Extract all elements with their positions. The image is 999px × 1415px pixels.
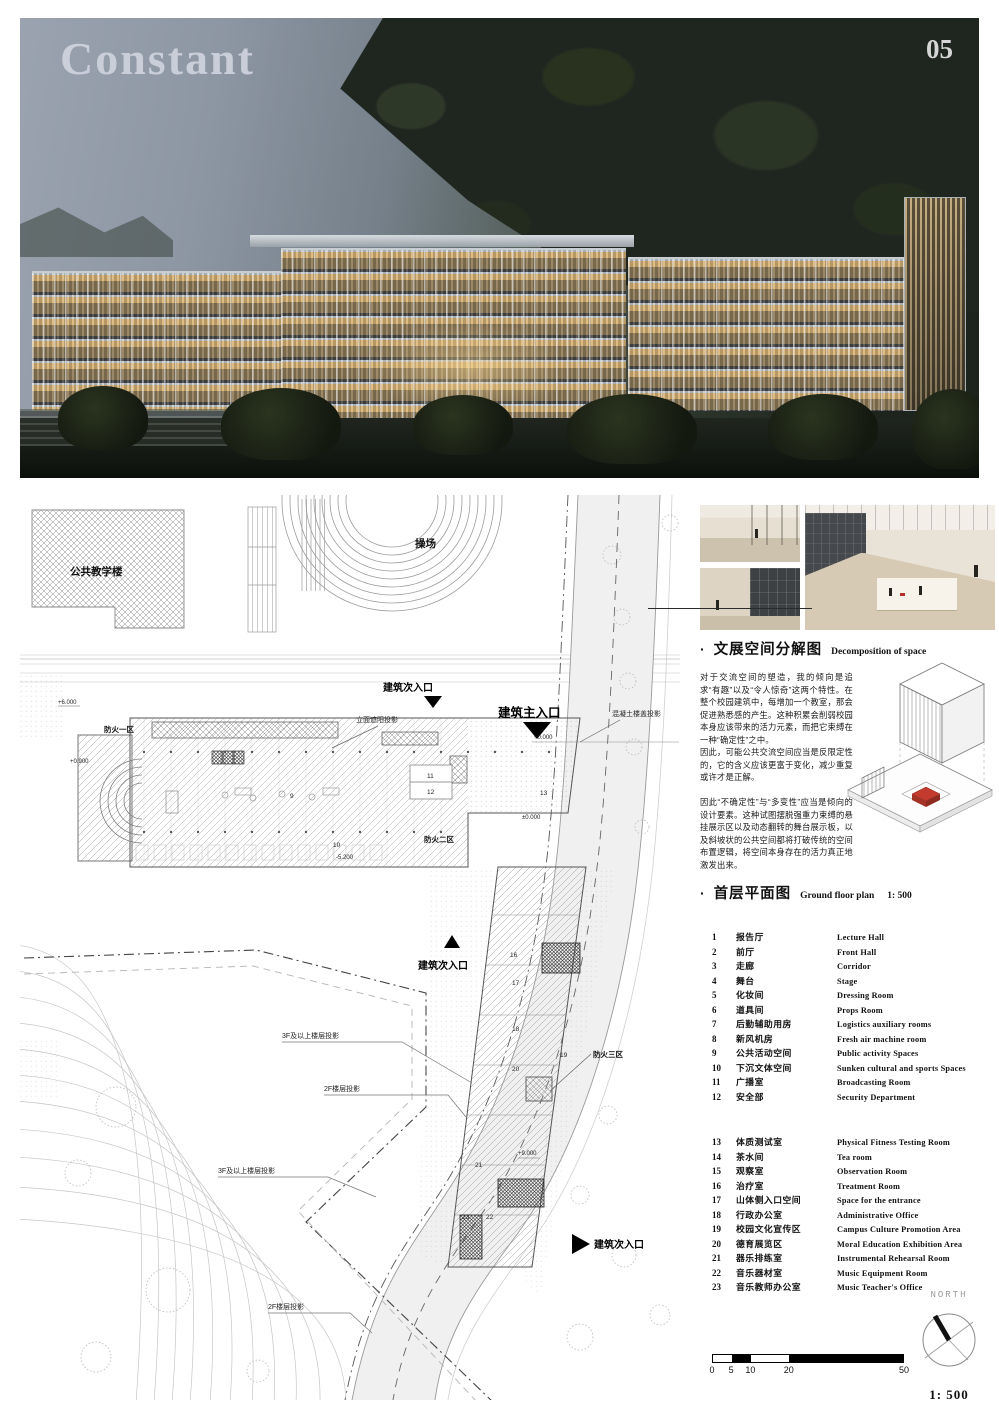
striped-strip-building xyxy=(248,507,276,632)
foreground-tree xyxy=(567,394,697,464)
section-decomposition-heading: · 文展空间分解图 Decomposition of space xyxy=(700,638,926,659)
legend-row: 21器乐排练室Instrumental Rehearsal Room xyxy=(712,1251,995,1266)
legend-row: 18行政办公室Administrative Office xyxy=(712,1208,995,1223)
figure-silhouette xyxy=(755,529,758,538)
svg-text:防火二区: 防火二区 xyxy=(424,834,454,844)
svg-text:3F及以上楼层投影: 3F及以上楼层投影 xyxy=(282,1031,339,1040)
north-label: NORTH xyxy=(912,1290,986,1300)
svg-text:13: 13 xyxy=(540,790,548,797)
legend-row: 14茶水间Tea room xyxy=(712,1150,995,1165)
foreground-tree xyxy=(768,394,878,460)
compass-rose xyxy=(912,1300,986,1378)
svg-text:18: 18 xyxy=(512,1026,520,1033)
svg-text:21: 21 xyxy=(475,1162,483,1169)
legend-row: 20德育展览区Moral Education Exhibition Area xyxy=(712,1237,995,1252)
section-title-en: Decomposition of space xyxy=(831,647,926,657)
legend-row: 19校园文化宣传区Campus Culture Promotion Area xyxy=(712,1222,995,1237)
bullet: · xyxy=(700,641,705,657)
foreground-tree xyxy=(58,386,148,450)
figure-silhouette xyxy=(974,565,978,577)
public-building-label: 公共教学楼 xyxy=(70,565,123,578)
stage-object-red xyxy=(900,593,905,596)
legend-row: 9公共活动空间Public activity Spaces xyxy=(712,1046,995,1061)
ground-floor-plan: 公共教学楼 操场 xyxy=(20,495,680,1400)
north-compass: NORTH 1: 500 xyxy=(912,1290,986,1403)
svg-text:17: 17 xyxy=(512,980,520,987)
entrance-secondary-top-label: 建筑次入口 xyxy=(382,681,433,694)
legend-row: 8新风机房Fresh air machine room xyxy=(712,1032,995,1047)
legend-row: 5化妆间Dressing Room xyxy=(712,988,995,1003)
playground-label: 操场 xyxy=(415,537,436,550)
building-roof-slab xyxy=(250,235,634,247)
legend-row: 22音乐器材室Music Equipment Room xyxy=(712,1266,995,1281)
bullet: · xyxy=(700,885,705,901)
svg-text:19: 19 xyxy=(560,1052,568,1059)
sheet-title: Constant xyxy=(60,32,255,85)
legend-row: 17山体侧入口空间Space for the entrance xyxy=(712,1193,995,1208)
foreground-tree xyxy=(912,389,979,469)
entrance-secondary-bottom-label: 建筑次入口 xyxy=(593,1238,644,1251)
fire-core-1 xyxy=(152,722,338,738)
hero-render: Constant 05 xyxy=(20,18,979,478)
decomposition-axon-diagram xyxy=(838,658,998,878)
concept-paragraph-3: 因此“不确定性”与“多变性”应当是倾向的设计要素。这种试图摆脱强重力束缚的悬挂展… xyxy=(700,796,853,871)
plan-scale-ratio: 1: 500 xyxy=(912,1387,986,1403)
page-number: 05 xyxy=(926,34,953,65)
stage-object xyxy=(919,586,922,595)
foreground-tree xyxy=(413,395,513,455)
svg-text:+0.000: +0.000 xyxy=(534,735,553,741)
svg-text:9: 9 xyxy=(290,793,294,800)
interior-render-large xyxy=(805,505,995,630)
legend-group-b: 13体质测试室Physical Fitness Testing Room 14茶… xyxy=(712,1135,995,1295)
svg-text:3F及以上楼层投影: 3F及以上楼层投影 xyxy=(218,1166,275,1175)
svg-text:2F楼层投影: 2F楼层投影 xyxy=(324,1084,360,1093)
north-needle xyxy=(935,1316,949,1340)
legend-row: 15观察室Observation Room xyxy=(712,1164,995,1179)
section-title-zh: 文展空间分解图 xyxy=(714,638,823,659)
running-track xyxy=(282,495,502,611)
main-building-strip xyxy=(78,718,580,867)
svg-text:2F楼层投影: 2F楼层投影 xyxy=(268,1302,304,1311)
legend-row: 3走廊Corridor xyxy=(712,959,995,974)
svg-text:混凝土楼盖投影: 混凝土楼盖投影 xyxy=(612,709,661,718)
legend-row: 13体质测试室Physical Fitness Testing Room xyxy=(712,1135,995,1150)
legend-row: 2前厅Front Hall xyxy=(712,945,995,960)
svg-text:+0.900: +0.900 xyxy=(70,759,89,765)
svg-text:23: 23 xyxy=(462,1214,470,1221)
legend-row: 6道具间Props Room xyxy=(712,1003,995,1018)
section-ground-floor-heading: · 首层平面图 Ground floor plan 1: 500 xyxy=(700,882,912,903)
legend-row: 11广播室Broadcasting Room xyxy=(712,1075,995,1090)
section-title-zh: 首层平面图 xyxy=(714,882,792,903)
svg-text:11: 11 xyxy=(427,773,434,780)
svg-text:20: 20 xyxy=(512,1066,520,1073)
terrain-contours xyxy=(20,945,346,1400)
section-scale: 1: 500 xyxy=(887,891,912,901)
svg-text:±0.000: ±0.000 xyxy=(522,815,541,821)
section-title-en: Ground floor plan xyxy=(800,891,874,901)
svg-text:+9.000: +9.000 xyxy=(518,1151,537,1157)
svg-text:立面遮阳投影: 立面遮阳投影 xyxy=(356,715,398,724)
track-straight-lanes xyxy=(302,499,325,591)
presentation-sheet: Constant 05 xyxy=(0,0,999,1415)
legend-row: 10下沉文体空间Sunken cultural and sports Space… xyxy=(712,1061,995,1076)
svg-text:10: 10 xyxy=(333,842,341,849)
public-teaching-building-block: 公共教学楼 xyxy=(32,510,184,628)
svg-text:防火一区: 防火一区 xyxy=(104,724,134,734)
interior-thumb-corridor xyxy=(700,505,800,562)
legend-row: 12安全部Security Department xyxy=(712,1090,995,1105)
svg-text:-5.200: -5.200 xyxy=(336,855,354,861)
entrance-secondary-mid-label: 建筑次入口 xyxy=(417,959,468,972)
legend-row: 7后勤辅助用房Logistics auxiliary rooms xyxy=(712,1017,995,1032)
svg-text:12: 12 xyxy=(427,789,435,796)
interior-thumb-hall xyxy=(700,568,800,630)
facade-shading-block xyxy=(382,732,438,745)
scale-bar: 0 5 10 20 50 xyxy=(712,1354,904,1377)
svg-text:22: 22 xyxy=(486,1214,494,1221)
svg-text:16: 16 xyxy=(510,952,518,959)
concept-paragraph-2: 因此，可能公共交流空间应当是反限定性的，它的含义应该更富于变化，减少重复或许才是… xyxy=(700,746,853,784)
legend-row: 16治疗室Treatment Room xyxy=(712,1179,995,1194)
thumb-slats xyxy=(738,505,800,545)
legend-group-a: 1报告厅Lecture Hall 2前厅Front Hall 3走廊Corrid… xyxy=(712,930,995,1105)
building-left-wing xyxy=(32,271,281,411)
svg-text:防火三区: 防火三区 xyxy=(593,1049,623,1059)
concept-paragraph-1: 对于交流空间的塑造，我的倾向是追求“有趣”以及“令人惊奇”这两个特性。在整个校园… xyxy=(700,671,853,746)
foreground-tree xyxy=(221,388,341,460)
building-glass-tower xyxy=(904,197,965,411)
stage-object xyxy=(889,588,892,596)
scale-bar-segments xyxy=(712,1354,904,1363)
svg-text:+6.000: +6.000 xyxy=(58,700,77,706)
entrance-main-label: 建筑主入口 xyxy=(498,705,561,720)
plan-to-render-connector-line xyxy=(648,608,812,609)
legend-row: 4舞台Stage xyxy=(712,974,995,989)
legend-row: 1报告厅Lecture Hall xyxy=(712,930,995,945)
scale-bar-labels: 0 5 10 20 50 xyxy=(712,1365,904,1377)
thumb-floor xyxy=(700,616,800,630)
far-ridge xyxy=(20,202,173,257)
